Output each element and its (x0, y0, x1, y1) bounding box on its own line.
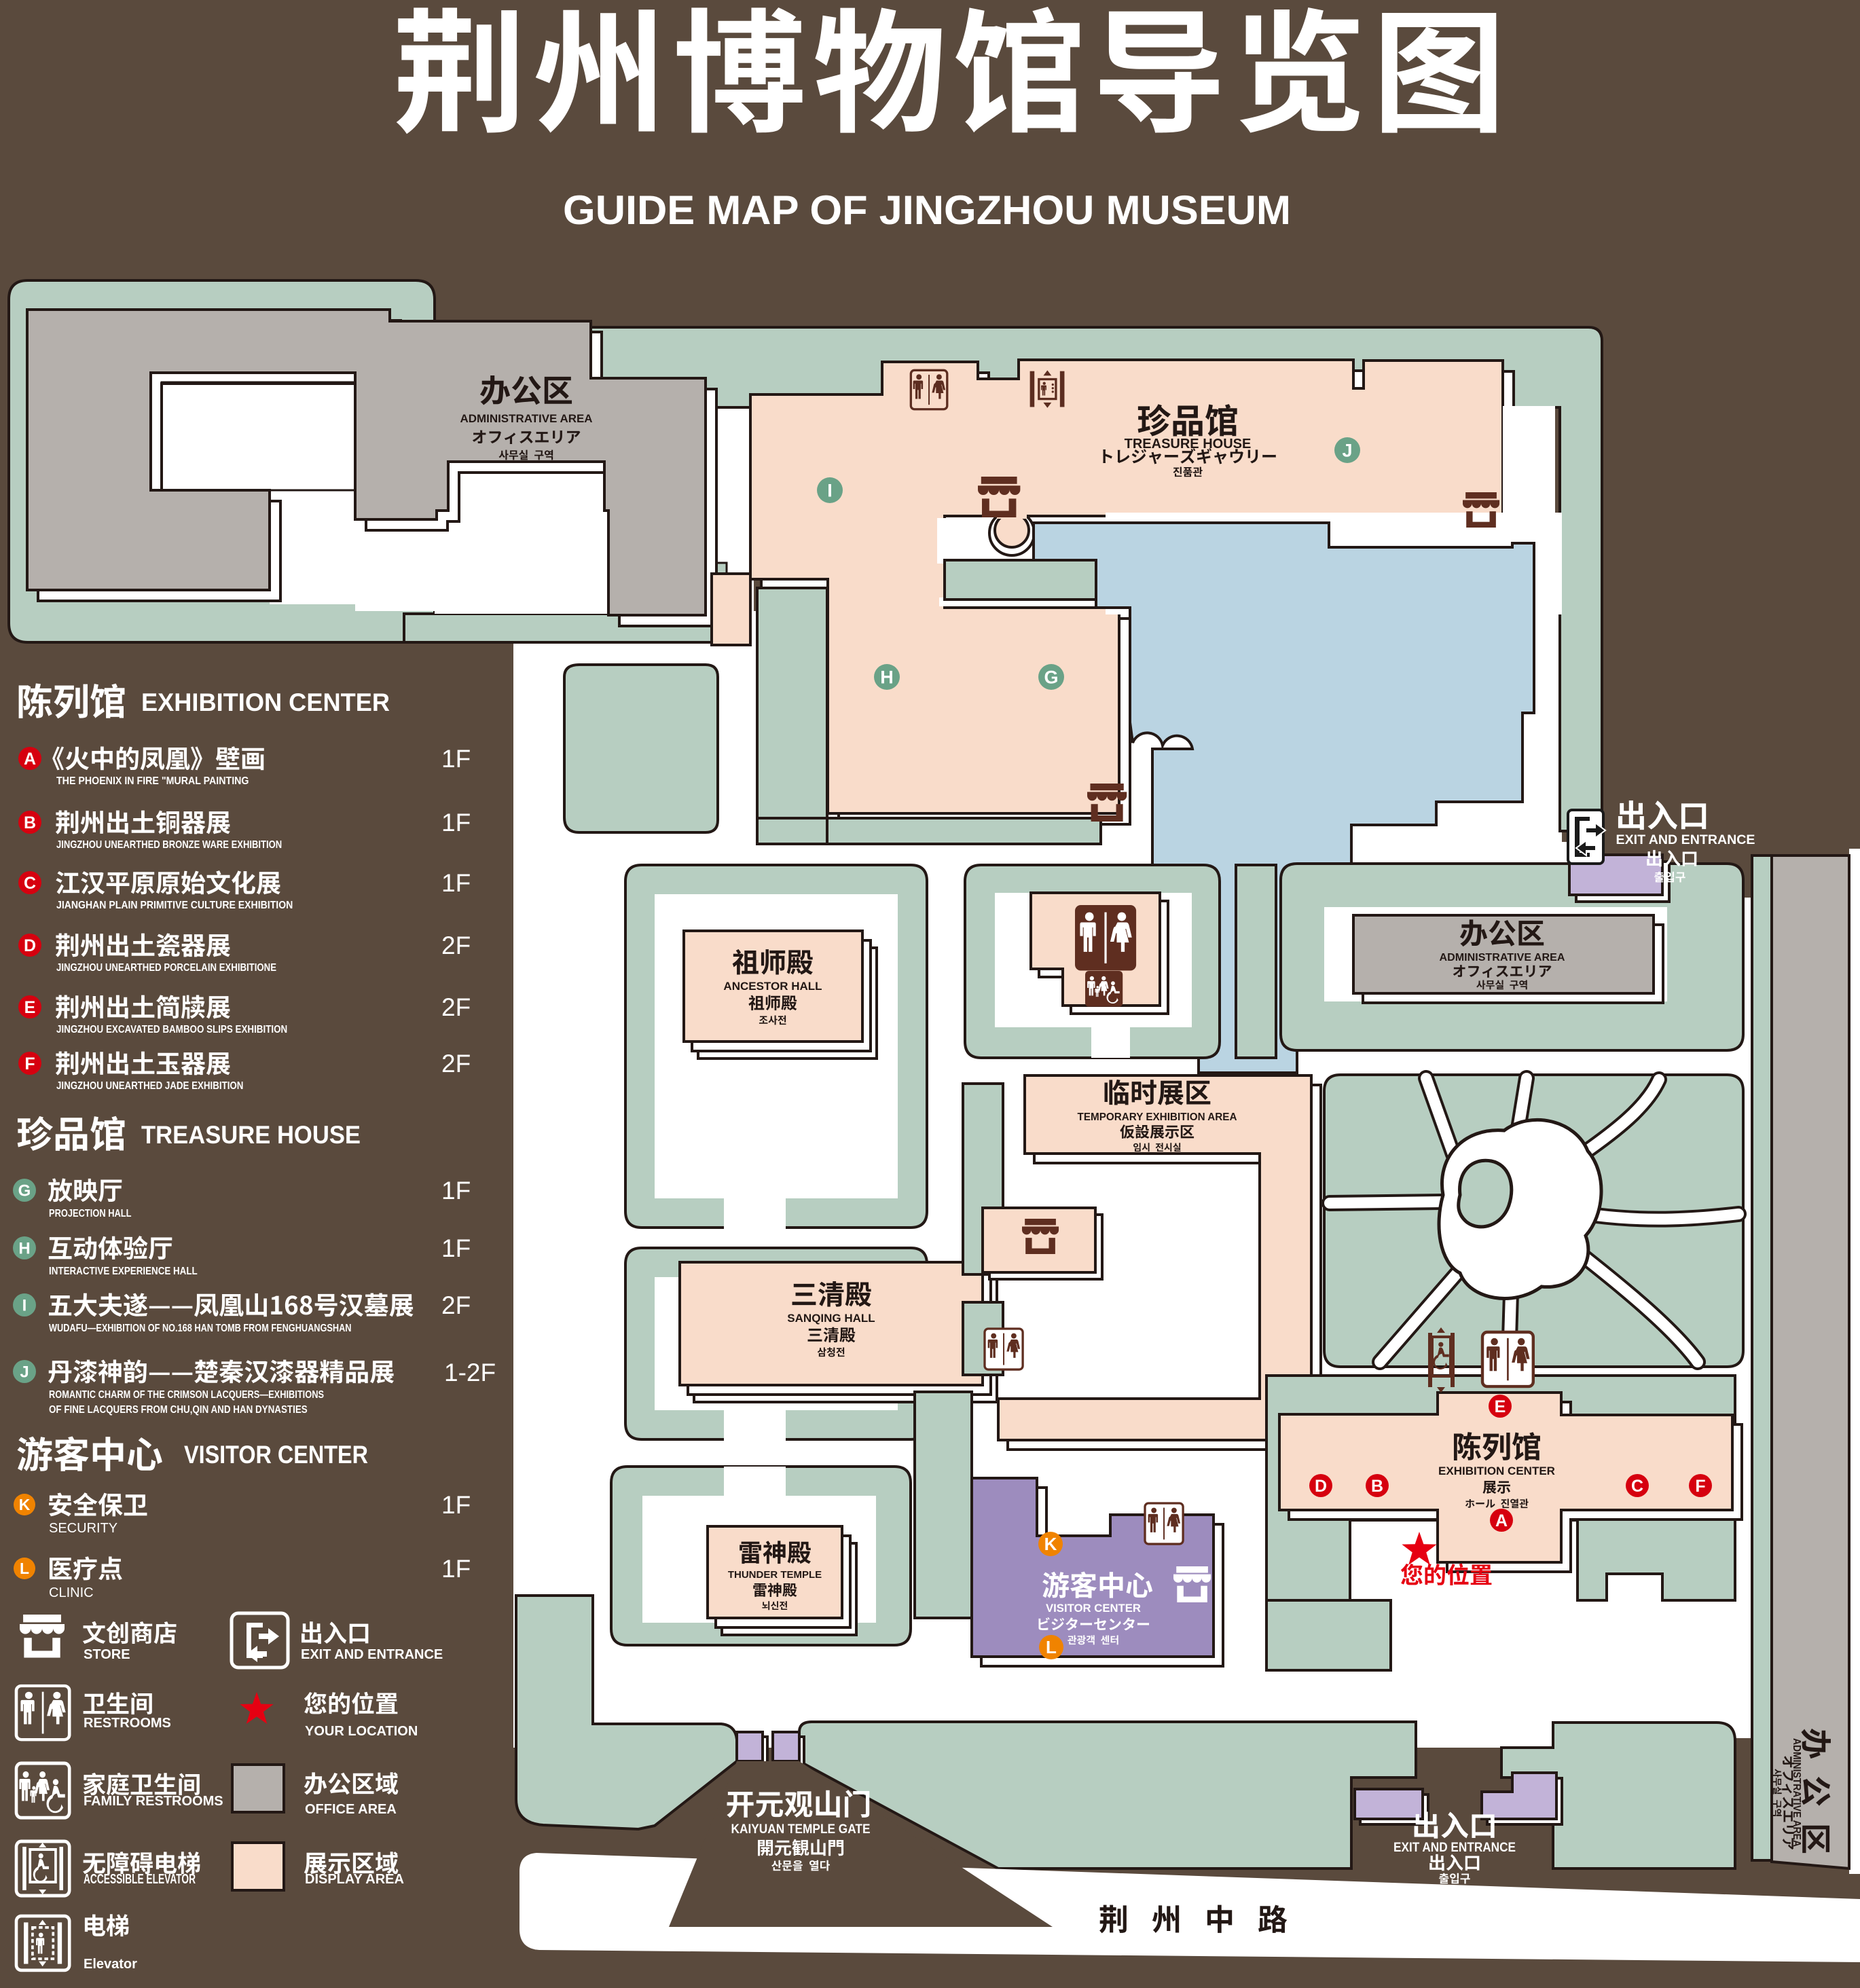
svg-text:DISPLAY AREA: DISPLAY AREA (305, 1872, 404, 1887)
svg-text:FAMILY RESTROOMS: FAMILY RESTROOMS (84, 1794, 223, 1809)
svg-text:TEMPORARY EXHIBITION AREA: TEMPORARY EXHIBITION AREA (1078, 1111, 1237, 1123)
svg-text:EXIT AND ENTRANCE: EXIT AND ENTRANCE (301, 1647, 443, 1662)
svg-text:B: B (1371, 1477, 1383, 1496)
svg-text:E: E (24, 998, 36, 1017)
svg-text:J: J (20, 1363, 29, 1381)
svg-text:TREASURE HOUSE: TREASURE HOUSE (1125, 437, 1252, 452)
svg-text:JINGZHOU UNEARTHED JADE EXHIBI: JINGZHOU UNEARTHED JADE EXHIBITION (56, 1080, 243, 1092)
svg-text:VISITOR CENTER: VISITOR CENTER (184, 1441, 368, 1469)
svg-text:VISITOR CENTER: VISITOR CENTER (1046, 1602, 1141, 1615)
svg-text:EXIT AND ENTRANCE: EXIT AND ENTRANCE (1393, 1841, 1516, 1855)
svg-text:1F: 1F (441, 809, 471, 836)
svg-text:OF FINE LACQUERS FROM CHU,QIN: OF FINE LACQUERS FROM CHU,QIN AND HAN DY… (49, 1404, 308, 1416)
svg-text:ANCESTOR HALL: ANCESTOR HALL (723, 980, 822, 993)
svg-text:L: L (20, 1560, 29, 1577)
svg-text:JIANGHAN PLAIN PRIMITIVE CULTU: JIANGHAN PLAIN PRIMITIVE CULTURE EXHIBIT… (56, 900, 293, 911)
svg-text:1F: 1F (441, 745, 471, 773)
svg-text:H: H (880, 667, 894, 687)
svg-text:K: K (19, 1496, 31, 1513)
svg-text:A: A (1495, 1511, 1508, 1530)
svg-text:1F: 1F (441, 1555, 471, 1583)
svg-text:SECURITY: SECURITY (49, 1521, 117, 1536)
svg-text:CLINIC: CLINIC (49, 1585, 94, 1600)
svg-text:EXHIBITION CENTER: EXHIBITION CENTER (1438, 1465, 1555, 1477)
svg-text:PROJECTION HALL: PROJECTION HALL (49, 1208, 132, 1219)
svg-text:B: B (24, 813, 36, 832)
svg-text:INTERACTIVE EXPERIENCE HALL: INTERACTIVE EXPERIENCE HALL (49, 1266, 198, 1277)
svg-text:C: C (24, 874, 36, 893)
svg-text:I: I (827, 480, 833, 500)
svg-text:KAIYUAN TEMPLE GATE: KAIYUAN TEMPLE GATE (731, 1822, 871, 1837)
svg-text:2F: 2F (441, 1050, 471, 1078)
svg-text:I: I (22, 1296, 27, 1314)
svg-text:E: E (1495, 1397, 1506, 1416)
svg-text:THE PHOENIX IN FIRE "MURAL PAI: THE PHOENIX IN FIRE "MURAL PAINTING (56, 775, 249, 787)
svg-text:1F: 1F (441, 1177, 471, 1204)
svg-text:OFFICE AREA: OFFICE AREA (305, 1802, 397, 1817)
svg-text:C: C (1631, 1477, 1643, 1496)
svg-text:YOUR LOCATION: YOUR LOCATION (305, 1724, 418, 1739)
svg-text:Elevator: Elevator (84, 1957, 137, 1972)
svg-text:ACCESSIBLE ELEVATOR: ACCESSIBLE ELEVATOR (84, 1872, 196, 1887)
svg-text:D: D (24, 936, 36, 955)
svg-text:F: F (1695, 1477, 1705, 1496)
svg-text:GUIDE MAP OF JINGZHOU MUSEUM: GUIDE MAP OF JINGZHOU MUSEUM (563, 187, 1291, 233)
svg-text:STORE: STORE (84, 1647, 130, 1662)
svg-text:1F: 1F (441, 869, 471, 897)
svg-text:TREASURE HOUSE: TREASURE HOUSE (141, 1121, 361, 1149)
svg-text:2F: 2F (441, 932, 471, 959)
svg-text:SANQING HALL: SANQING HALL (787, 1312, 875, 1325)
svg-text:ADMINISTRATIVE AREA: ADMINISTRATIVE AREA (1791, 1738, 1802, 1847)
svg-text:EXIT AND ENTRANCE: EXIT AND ENTRANCE (1616, 833, 1755, 847)
svg-text:JINGZHOU UNEARTHED PORCELAIN E: JINGZHOU UNEARTHED PORCELAIN EXHIBITIONE (56, 962, 276, 974)
svg-text:1F: 1F (441, 1491, 471, 1519)
svg-text:D: D (1315, 1477, 1327, 1496)
svg-text:THUNDER TEMPLE: THUNDER TEMPLE (728, 1569, 822, 1581)
svg-text:JINGZHOU UNEARTHED BRONZE WARE: JINGZHOU UNEARTHED BRONZE WARE EXHIBITIO… (56, 839, 282, 851)
svg-text:1F: 1F (441, 1234, 471, 1262)
svg-text:H: H (18, 1239, 30, 1257)
svg-text:JINGZHOU EXCAVATED BAMBOO SLIP: JINGZHOU EXCAVATED BAMBOO SLIPS EXHIBITI… (56, 1024, 287, 1035)
svg-text:K: K (1044, 1534, 1057, 1554)
svg-text:F: F (24, 1054, 35, 1073)
svg-text:2F: 2F (441, 993, 471, 1021)
svg-text:ROMANTIC CHARM OF THE CRIMSON: ROMANTIC CHARM OF THE CRIMSON LACQUERS—E… (49, 1389, 324, 1401)
svg-text:WUDAFU—EXHIBITION OF NO.168 HA: WUDAFU—EXHIBITION OF NO.168 HAN TOMB FRO… (49, 1323, 352, 1334)
svg-text:G: G (1044, 667, 1058, 687)
svg-text:J: J (1342, 440, 1352, 460)
svg-text:1-2F: 1-2F (444, 1359, 496, 1386)
svg-text:A: A (24, 750, 36, 769)
svg-text:L: L (1046, 1637, 1057, 1657)
svg-text:G: G (18, 1181, 31, 1200)
svg-text:ADMINISTRATIVE AREA: ADMINISTRATIVE AREA (1440, 952, 1565, 963)
svg-text:RESTROOMS: RESTROOMS (84, 1716, 171, 1731)
svg-text:ADMINISTRATIVE AREA: ADMINISTRATIVE AREA (460, 412, 593, 425)
svg-text:EXHIBITION CENTER: EXHIBITION CENTER (141, 688, 390, 716)
svg-text:2F: 2F (441, 1291, 471, 1319)
